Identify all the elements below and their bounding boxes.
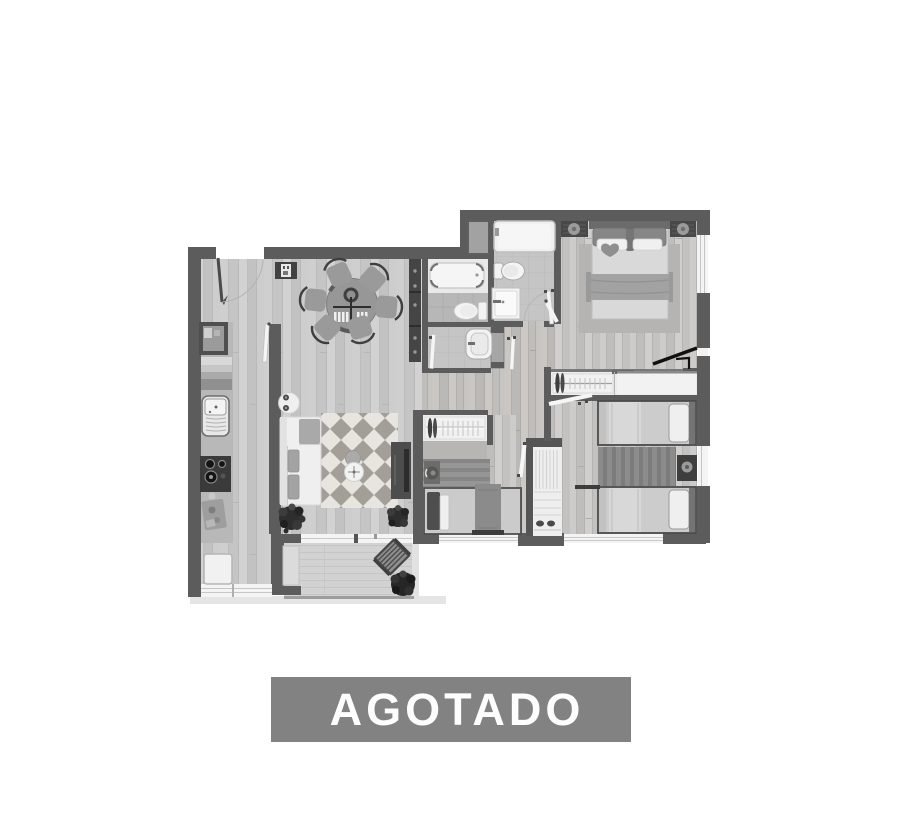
svg-text:AGOTADO: AGOTADO — [330, 684, 585, 735]
